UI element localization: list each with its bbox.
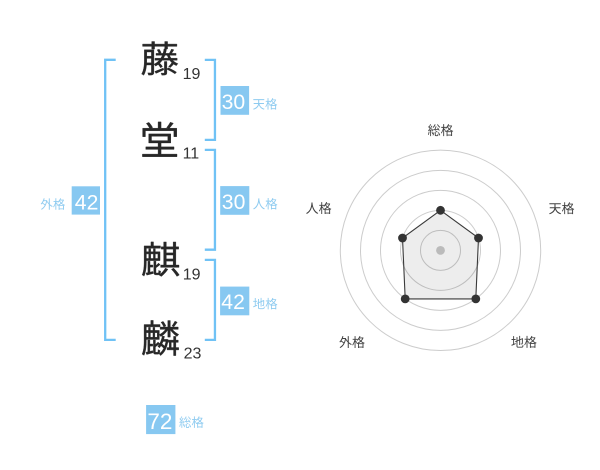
svg-text:42: 42 bbox=[221, 291, 245, 314]
svg-text:30: 30 bbox=[222, 91, 246, 114]
svg-text:42: 42 bbox=[75, 192, 99, 215]
svg-text:72: 72 bbox=[147, 409, 172, 434]
svg-text:30: 30 bbox=[222, 191, 246, 214]
svg-text:19: 19 bbox=[183, 266, 201, 283]
svg-text:23: 23 bbox=[184, 345, 202, 362]
svg-text:11: 11 bbox=[183, 146, 200, 163]
svg-text:19: 19 bbox=[183, 66, 201, 83]
